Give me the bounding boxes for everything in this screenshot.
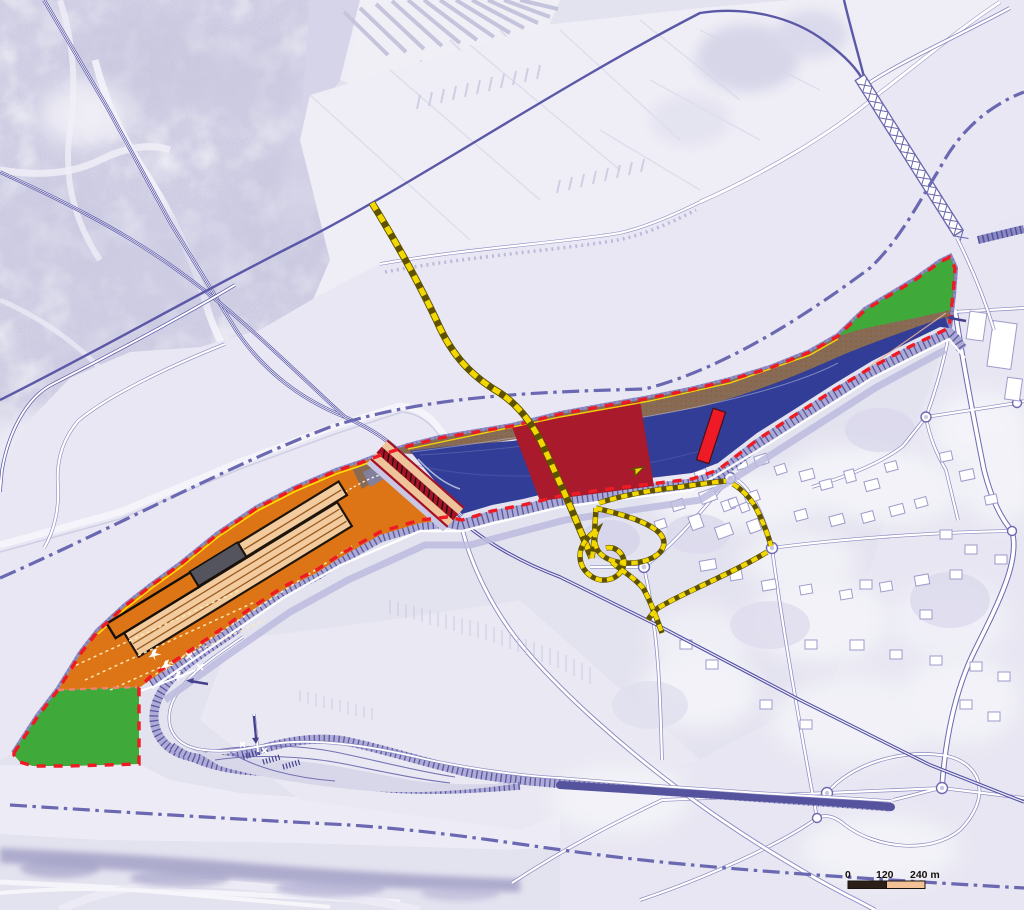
svg-text:0: 0 (845, 869, 851, 881)
svg-text:240 m: 240 m (910, 869, 940, 881)
svg-text:120: 120 (876, 869, 894, 881)
